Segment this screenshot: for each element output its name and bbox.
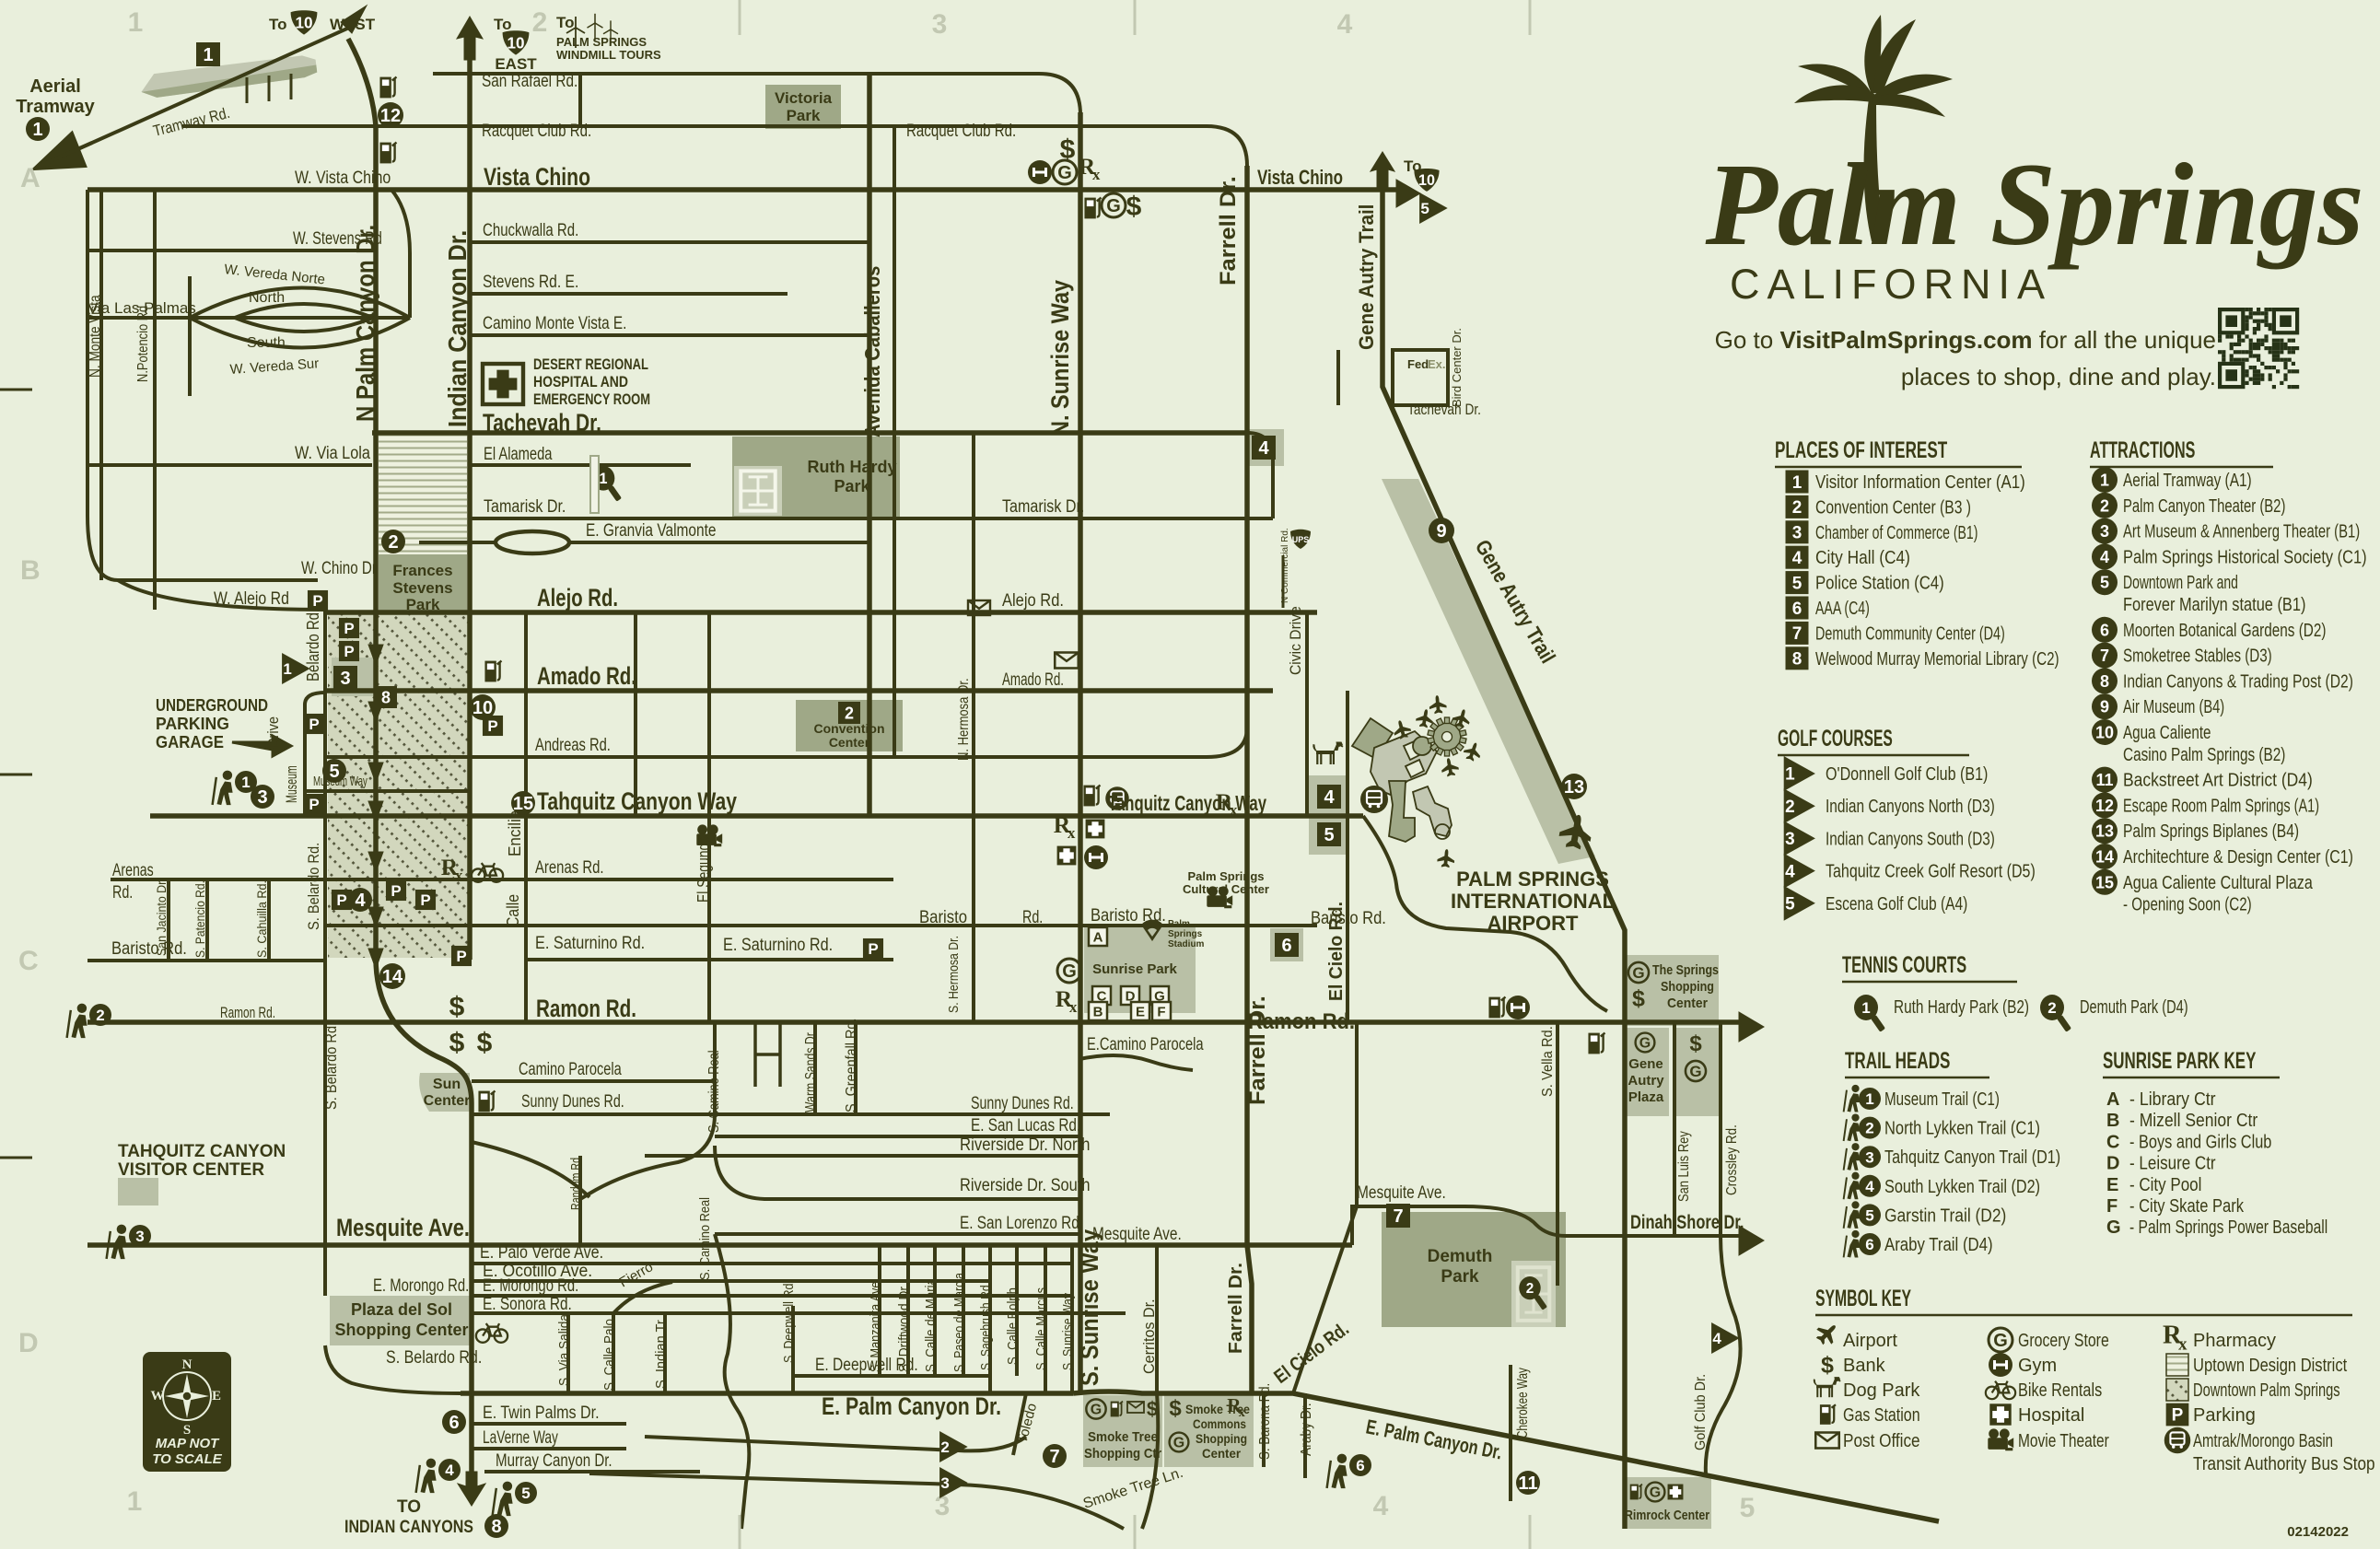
svg-text:1: 1 xyxy=(600,471,608,487)
svg-text:3: 3 xyxy=(1792,524,1802,543)
svg-text:Dog Park: Dog Park xyxy=(1843,1380,1920,1401)
svg-text:Golf Club Dr.: Golf Club Dr. xyxy=(1693,1374,1709,1450)
svg-text:E. Morongo Rd.: E. Morongo Rd. xyxy=(483,1276,578,1296)
svg-text:ATTRACTIONS: ATTRACTIONS xyxy=(2090,437,2195,463)
svg-text:E. Palo Verde Ave.: E. Palo Verde Ave. xyxy=(480,1243,603,1263)
svg-text:Vista Chino: Vista Chino xyxy=(1257,166,1343,189)
svg-text:Park: Park xyxy=(787,107,821,124)
svg-text:HOSPITAL AND: HOSPITAL AND xyxy=(533,373,628,390)
svg-text:Shopping: Shopping xyxy=(1661,979,1714,995)
svg-text:P: P xyxy=(309,796,319,813)
svg-text:Hospital: Hospital xyxy=(2018,1405,2084,1426)
svg-text:Mesquite Ave.: Mesquite Ave. xyxy=(1092,1225,1182,1244)
svg-text:G: G xyxy=(1091,1403,1102,1418)
svg-text:Tamarisk Dr.: Tamarisk Dr. xyxy=(484,497,566,517)
svg-text:14: 14 xyxy=(2095,847,2114,866)
svg-text:Rd.: Rd. xyxy=(1022,908,1043,927)
svg-text:To: To xyxy=(494,16,512,33)
svg-text:4: 4 xyxy=(1373,1491,1389,1521)
svg-text:Airport: Airport xyxy=(1843,1331,1897,1351)
svg-text:Avenida Caballeros: Avenida Caballeros xyxy=(860,266,884,437)
svg-text:Victoria: Victoria xyxy=(775,89,833,107)
svg-text:1: 1 xyxy=(128,7,144,38)
svg-text:GARAGE: GARAGE xyxy=(156,733,224,751)
svg-text:Post Office: Post Office xyxy=(1843,1431,1920,1451)
svg-text:Springs: Springs xyxy=(1168,929,1203,939)
svg-text:Escape Room Palm Springs (A1): Escape Room Palm Springs (A1) xyxy=(2123,796,2319,816)
svg-text:Baristo Rd.: Baristo Rd. xyxy=(1091,906,1166,926)
svg-text:4: 4 xyxy=(1258,438,1269,459)
svg-text:Gym: Gym xyxy=(2018,1356,2057,1376)
svg-text:Alejo Rd.: Alejo Rd. xyxy=(537,584,618,611)
svg-text:S. Calle Marcus: S. Calle Marcus xyxy=(1033,1287,1049,1370)
svg-text:- Boys and Girls Club: - Boys and Girls Club xyxy=(2129,1132,2271,1152)
svg-text:Gene Autry Trail: Gene Autry Trail xyxy=(1355,204,1378,350)
svg-text:Mesquite Ave.: Mesquite Ave. xyxy=(336,1214,470,1241)
svg-text:G: G xyxy=(2106,1217,2121,1238)
svg-text:2: 2 xyxy=(532,7,548,38)
svg-text:Rd.: Rd. xyxy=(112,883,133,903)
svg-text:4: 4 xyxy=(2100,548,2109,566)
svg-text:4: 4 xyxy=(1712,1330,1721,1347)
svg-text:5: 5 xyxy=(521,1485,530,1502)
svg-text:4: 4 xyxy=(1792,549,1802,568)
svg-text:Ruth Hardy: Ruth Hardy xyxy=(807,458,896,476)
svg-text:W. Chino Dr: W. Chino Dr xyxy=(301,559,377,578)
svg-text:Smoke Tree: Smoke Tree xyxy=(1185,1402,1250,1416)
svg-text:N.Potencio Rd: N.Potencio Rd xyxy=(135,306,151,382)
svg-text:D: D xyxy=(18,1328,39,1358)
svg-text:A: A xyxy=(1093,930,1103,946)
svg-text:$: $ xyxy=(449,992,465,1022)
svg-text:3: 3 xyxy=(340,669,350,689)
svg-text:E. Sonora Rd.: E. Sonora Rd. xyxy=(483,1295,572,1314)
svg-text:10: 10 xyxy=(472,698,493,718)
svg-text:Baristo Rd.: Baristo Rd. xyxy=(1311,909,1386,928)
svg-text:W. Via Lola: W. Via Lola xyxy=(295,444,370,463)
svg-text:N. Hermosa Dr.: N. Hermosa Dr. xyxy=(956,678,972,761)
svg-text:3: 3 xyxy=(940,1474,949,1492)
svg-text:S. Camino Real: S. Camino Real xyxy=(697,1197,713,1280)
svg-text:Alejo Rd.: Alejo Rd. xyxy=(1002,591,1064,611)
svg-text:SYMBOL KEY: SYMBOL KEY xyxy=(1815,1286,1911,1311)
svg-text:Ramon Rd.: Ramon Rd. xyxy=(536,995,636,1022)
svg-text:W. Alejo Rd: W. Alejo Rd xyxy=(214,589,289,609)
svg-text:S. Cahuilla Rd.: S. Cahuilla Rd. xyxy=(254,880,269,958)
svg-text:P: P xyxy=(309,716,319,733)
svg-text:SUNRISE PARK KEY: SUNRISE PARK KEY xyxy=(2103,1048,2257,1074)
svg-text:$: $ xyxy=(449,1028,465,1058)
svg-text:5: 5 xyxy=(1420,200,1429,217)
svg-text:10: 10 xyxy=(295,14,312,31)
svg-text:C: C xyxy=(18,946,39,976)
svg-text:$: $ xyxy=(1689,1031,1702,1056)
svg-text:5: 5 xyxy=(1865,1207,1873,1225)
svg-text:N. Sunrise Way: N. Sunrise Way xyxy=(1046,280,1074,437)
svg-text:TAHQUITZ CANYON: TAHQUITZ CANYON xyxy=(118,1142,286,1161)
svg-text:Civic Drive: Civic Drive xyxy=(1287,606,1304,675)
svg-text:Air Museum (B4): Air Museum (B4) xyxy=(2123,697,2224,717)
svg-text:S. Belardo Rd.: S. Belardo Rd. xyxy=(322,1022,340,1110)
svg-text:To: To xyxy=(269,16,287,33)
svg-text:5: 5 xyxy=(1740,1493,1756,1523)
svg-text:Stadium: Stadium xyxy=(1168,939,1205,949)
svg-text:1: 1 xyxy=(241,774,250,791)
svg-text:02142022: 02142022 xyxy=(2287,1524,2349,1540)
svg-text:Sunny Dunes Rd.: Sunny Dunes Rd. xyxy=(521,1092,624,1112)
svg-text:Tahquitz Canyon Way: Tahquitz Canyon Way xyxy=(1108,791,1266,815)
svg-text:4: 4 xyxy=(355,891,366,911)
svg-text:P: P xyxy=(391,882,401,900)
svg-text:15: 15 xyxy=(2095,873,2114,891)
svg-text:Sunny Dunes Rd.: Sunny Dunes Rd. xyxy=(971,1094,1074,1113)
svg-text:6: 6 xyxy=(1792,600,1802,619)
svg-text:Crossley Rd.: Crossley Rd. xyxy=(1724,1124,1740,1195)
svg-text:$: $ xyxy=(1126,192,1142,222)
svg-text:7: 7 xyxy=(1393,1206,1403,1227)
svg-text:S. Patencio Rd.: S. Patencio Rd. xyxy=(192,880,207,958)
svg-text:GOLF COURSES: GOLF COURSES xyxy=(1778,726,1893,751)
svg-text:INDIAN CANYONS: INDIAN CANYONS xyxy=(344,1518,473,1537)
svg-text:P: P xyxy=(336,891,346,909)
svg-text:Bird Center Dr.: Bird Center Dr. xyxy=(1450,328,1464,407)
svg-text:Visitor Information Center (A1: Visitor Information Center (A1) xyxy=(1815,472,2025,493)
svg-text:S. Belardo Rd.: S. Belardo Rd. xyxy=(386,1348,482,1368)
svg-text:E: E xyxy=(2106,1175,2118,1195)
svg-text:2: 2 xyxy=(388,532,398,553)
svg-text:Palm Springs Biplanes (B4): Palm Springs Biplanes (B4) xyxy=(2123,821,2299,842)
svg-text:Backstreet Art District (D4): Backstreet Art District (D4) xyxy=(2123,771,2313,791)
svg-text:3: 3 xyxy=(257,787,267,808)
svg-text:2: 2 xyxy=(2047,999,2056,1017)
svg-text:South Lykken Trail (D2): South Lykken Trail (D2) xyxy=(1884,1177,2040,1197)
svg-text:S. Belardo Rd.: S. Belardo Rd. xyxy=(305,843,322,930)
svg-text:Demuth: Demuth xyxy=(1428,1247,1493,1266)
svg-text:Museum: Museum xyxy=(283,765,300,803)
svg-text:Stevens: Stevens xyxy=(392,579,452,597)
svg-text:P: P xyxy=(420,891,430,909)
svg-text:A: A xyxy=(2106,1089,2119,1110)
svg-text:B: B xyxy=(20,555,41,586)
svg-text:Dinah Shore Dr.: Dinah Shore Dr. xyxy=(1630,1212,1744,1233)
svg-text:Park: Park xyxy=(1441,1267,1479,1287)
svg-text:1: 1 xyxy=(283,660,291,678)
svg-text:EMERGENCY ROOM: EMERGENCY ROOM xyxy=(533,390,650,408)
svg-text:E. Granvia Valmonte: E. Granvia Valmonte xyxy=(586,521,717,541)
svg-text:9: 9 xyxy=(2100,698,2109,716)
svg-text:13: 13 xyxy=(1564,777,1584,798)
svg-text:- Mizell Senior Ctr: - Mizell Senior Ctr xyxy=(2129,1111,2257,1131)
svg-text:Cerritos Dr.: Cerritos Dr. xyxy=(1140,1299,1158,1374)
svg-text:Tachevah Dr.: Tachevah Dr. xyxy=(1407,401,1481,418)
svg-text:Mesquite Ave.: Mesquite Ave. xyxy=(1357,1183,1446,1203)
svg-text:2: 2 xyxy=(1526,1281,1534,1297)
svg-text:Palm Springs Historical Societ: Palm Springs Historical Society (C1) xyxy=(2123,547,2367,567)
svg-text:Via Las Palmas: Via Las Palmas xyxy=(87,299,196,317)
svg-text:2: 2 xyxy=(2100,496,2109,515)
svg-text:Calle: Calle xyxy=(504,894,522,927)
svg-text:VISITOR CENTER: VISITOR CENTER xyxy=(118,1160,264,1180)
svg-text:WINDMILL TOURS: WINDMILL TOURS xyxy=(556,48,661,62)
svg-text:3: 3 xyxy=(2100,522,2109,541)
svg-text:Downtown Palm Springs: Downtown Palm Springs xyxy=(2193,1380,2340,1401)
svg-text:PALM SPRINGS: PALM SPRINGS xyxy=(556,35,647,49)
svg-text:S. Calle Rolph: S. Calle Rolph xyxy=(1005,1287,1021,1365)
svg-text:1: 1 xyxy=(1785,765,1795,785)
svg-text:G: G xyxy=(1650,1485,1661,1501)
svg-text:E: E xyxy=(212,1389,221,1403)
svg-text:Bike Rentals: Bike Rentals xyxy=(2018,1380,2102,1401)
svg-text:MAP NOT: MAP NOT xyxy=(156,1436,220,1451)
svg-text:Movie Theater: Movie Theater xyxy=(2018,1431,2109,1451)
svg-text:Farrell Dr.: Farrell Dr. xyxy=(1226,1263,1246,1354)
svg-text:W. Vista Chino: W. Vista Chino xyxy=(295,169,391,188)
svg-text:E. Saturnino Rd.: E. Saturnino Rd. xyxy=(723,936,833,955)
svg-text:INTERNATIONAL: INTERNATIONAL xyxy=(1451,890,1615,913)
svg-text:Police Station (C4): Police Station (C4) xyxy=(1815,574,1944,594)
svg-text:Palm Canyon Theater (B2): Palm Canyon Theater (B2) xyxy=(2123,496,2285,517)
svg-text:AAA (C4): AAA (C4) xyxy=(1815,599,1870,619)
svg-text:- Opening Soon (C2): - Opening Soon (C2) xyxy=(2123,895,2252,915)
svg-text:B: B xyxy=(2106,1111,2119,1131)
svg-text:2: 2 xyxy=(1785,798,1795,817)
svg-text:Grocery Store: Grocery Store xyxy=(2018,1331,2109,1351)
svg-text:Frances: Frances xyxy=(392,562,452,579)
svg-text:Architechture & Design Center: Architechture & Design Center (C1) xyxy=(2123,847,2353,868)
svg-text:Pharmacy: Pharmacy xyxy=(2193,1331,2276,1351)
svg-text:P: P xyxy=(344,620,354,637)
svg-text:TO SCALE: TO SCALE xyxy=(152,1451,223,1467)
svg-text:1: 1 xyxy=(2100,471,2109,489)
svg-text:- City Skate Park: - City Skate Park xyxy=(2129,1196,2245,1217)
svg-text:City Hall (C4): City Hall (C4) xyxy=(1815,548,1910,568)
svg-text:Riverside Dr. North: Riverside Dr. North xyxy=(960,1136,1091,1155)
svg-text:S. Greenfall Rd.: S. Greenfall Rd. xyxy=(844,1019,859,1112)
svg-text:Palm: Palm xyxy=(1168,919,1190,929)
svg-text:Center: Center xyxy=(1667,996,1708,1011)
svg-text:CALIFORNIA: CALIFORNIA xyxy=(1730,261,2052,308)
svg-text:6: 6 xyxy=(1281,936,1291,956)
svg-text:x: x xyxy=(1069,998,1078,1016)
svg-text:Art Museum & Annenberg Theater: Art Museum & Annenberg Theater (B1) xyxy=(2123,522,2360,542)
svg-text:S. Camino Real: S. Camino Real xyxy=(706,1050,722,1133)
svg-text:Riverside Dr. South: Riverside Dr. South xyxy=(960,1176,1091,1195)
svg-text:Drive: Drive xyxy=(264,716,282,748)
svg-text:12: 12 xyxy=(2095,797,2114,815)
svg-text:Indian Canyons South (D3): Indian Canyons South (D3) xyxy=(1826,829,1995,849)
svg-text:P: P xyxy=(2172,1406,2184,1426)
svg-text:G: G xyxy=(1632,964,1644,982)
svg-text:Amado Rd.: Amado Rd. xyxy=(537,662,636,690)
svg-text:Shopping Center: Shopping Center xyxy=(335,1321,469,1339)
svg-text:S. Driftwood Dr.: S. Driftwood Dr. xyxy=(896,1284,912,1372)
svg-text:10: 10 xyxy=(2095,723,2114,741)
svg-text:Demuth Park (D4): Demuth Park (D4) xyxy=(2080,997,2188,1018)
svg-text:11: 11 xyxy=(2095,771,2113,789)
svg-text:Museum Trail (C1): Museum Trail (C1) xyxy=(1884,1089,2000,1110)
svg-text:10: 10 xyxy=(1418,172,1435,189)
svg-text:1: 1 xyxy=(127,1486,143,1517)
svg-text:Tamarisk Dr.: Tamarisk Dr. xyxy=(1002,497,1084,517)
svg-text:Downtown Park and: Downtown Park and xyxy=(2123,573,2238,593)
svg-text:El Segundo: El Segundo xyxy=(694,836,713,903)
svg-text:TRAIL HEADS: TRAIL HEADS xyxy=(1845,1048,1950,1074)
svg-text:Amtrak/Morongo Basin: Amtrak/Morongo Basin xyxy=(2193,1431,2333,1451)
svg-text:WEST: WEST xyxy=(330,16,376,33)
svg-text:4: 4 xyxy=(1785,862,1795,881)
svg-text:S. Sunrise Way: S. Sunrise Way xyxy=(1076,1229,1103,1386)
svg-text:7: 7 xyxy=(1792,624,1802,644)
svg-text:S. Sunrise Way: S. Sunrise Way xyxy=(1060,1293,1076,1370)
svg-text:Commons: Commons xyxy=(1193,1416,1246,1431)
svg-text:E: E xyxy=(1136,1005,1145,1020)
svg-text:S. Sagebrush Rd.: S. Sagebrush Rd. xyxy=(978,1282,994,1370)
svg-text:P: P xyxy=(344,643,354,660)
svg-text:4: 4 xyxy=(1324,787,1335,808)
svg-text:Arenas: Arenas xyxy=(112,861,154,880)
svg-text:S. Paseo de Marcia: S. Paseo de Marcia xyxy=(951,1272,967,1372)
svg-text:S. Calle Palo: S. Calle Palo xyxy=(601,1319,617,1391)
svg-text:N: N xyxy=(182,1357,192,1372)
svg-text:D: D xyxy=(2106,1154,2119,1174)
svg-text:Andreas Rd.: Andreas Rd. xyxy=(535,736,611,755)
svg-text:G: G xyxy=(1106,196,1121,216)
svg-text:E.Camino Parocela: E.Camino Parocela xyxy=(1087,1035,1204,1054)
svg-text:E. San Lucas Rd.: E. San Lucas Rd. xyxy=(971,1116,1080,1136)
svg-text:F: F xyxy=(1157,1005,1165,1020)
svg-text:7: 7 xyxy=(2100,646,2109,665)
svg-text:1: 1 xyxy=(1792,473,1802,493)
svg-text:Sun: Sun xyxy=(433,1077,461,1092)
svg-text:North: North xyxy=(249,290,285,306)
svg-text:Center: Center xyxy=(829,735,870,750)
svg-text:Racquet Club Rd.: Racquet Club Rd. xyxy=(482,122,591,141)
svg-text:3: 3 xyxy=(1785,830,1795,849)
svg-text:Chamber of Commerce (B1): Chamber of Commerce (B1) xyxy=(1815,523,1977,543)
svg-text:Moorten Botanical Gardens (D2): Moorten Botanical Gardens (D2) xyxy=(2123,621,2327,641)
svg-text:Stevens Rd. E.: Stevens Rd. E. xyxy=(483,273,578,292)
svg-text:- Library Ctr: - Library Ctr xyxy=(2129,1089,2216,1110)
svg-text:S. Calle de Maria: S. Calle de Maria xyxy=(923,1277,939,1372)
svg-text:2: 2 xyxy=(1792,498,1802,518)
svg-text:G: G xyxy=(1993,1331,2008,1351)
svg-text:PARKING: PARKING xyxy=(156,715,229,733)
svg-text:2: 2 xyxy=(96,1007,104,1024)
svg-text:4: 4 xyxy=(1337,9,1353,40)
svg-text:P: P xyxy=(487,717,497,735)
svg-text:Convention Center (B3 ): Convention Center (B3 ) xyxy=(1815,497,1971,518)
svg-text:Indian Canyons & Trading Post: Indian Canyons & Trading Post (D2) xyxy=(2123,671,2353,692)
svg-text:Center: Center xyxy=(424,1093,471,1109)
svg-text:- Palm Springs Power Baseball: - Palm Springs Power Baseball xyxy=(2129,1217,2327,1238)
svg-text:8: 8 xyxy=(381,688,391,706)
svg-text:1: 1 xyxy=(1865,1090,1873,1108)
svg-text:Transit Authority Bus Stop: Transit Authority Bus Stop xyxy=(2193,1454,2375,1474)
svg-text:9: 9 xyxy=(1436,521,1446,542)
svg-text:- City Pool: - City Pool xyxy=(2129,1175,2201,1195)
svg-text:$: $ xyxy=(1632,986,1645,1012)
svg-text:5: 5 xyxy=(1785,894,1795,914)
svg-text:Plaza del Sol: Plaza del Sol xyxy=(351,1300,452,1319)
svg-text:Tahquitz Canyon Way: Tahquitz Canyon Way xyxy=(537,787,737,815)
svg-text:Shopping Ctr: Shopping Ctr xyxy=(1084,1446,1161,1462)
svg-text:S. Hermosa Dr.: S. Hermosa Dr. xyxy=(946,936,962,1013)
svg-text:Araby Trail (D4): Araby Trail (D4) xyxy=(1884,1235,1993,1255)
svg-text:x: x xyxy=(455,867,463,884)
svg-text:S. Deepwell Rd.: S. Deepwell Rd. xyxy=(781,1280,797,1363)
svg-text:1: 1 xyxy=(1861,999,1870,1017)
svg-text:Racquet Club Rd.: Racquet Club Rd. xyxy=(906,122,1016,141)
svg-text:Garstin Trail (D2): Garstin Trail (D2) xyxy=(1884,1205,2006,1226)
svg-text:N Commercial Rd.: N Commercial Rd. xyxy=(1280,528,1290,603)
svg-text:P: P xyxy=(456,948,466,965)
svg-text:S. Vella Rd.: S. Vella Rd. xyxy=(1540,1026,1556,1097)
svg-text:10: 10 xyxy=(507,34,524,52)
svg-text:San Rafael Rd.: San Rafael Rd. xyxy=(482,72,577,91)
svg-text:2: 2 xyxy=(940,1438,949,1456)
svg-text:E. Twin Palms Dr.: E. Twin Palms Dr. xyxy=(483,1403,600,1423)
svg-text:Cultural Center: Cultural Center xyxy=(1183,882,1269,896)
svg-text:1: 1 xyxy=(203,45,213,65)
svg-text:E. Palm Canyon Dr.: E. Palm Canyon Dr. xyxy=(822,1392,1001,1420)
svg-text:14: 14 xyxy=(382,967,403,987)
svg-text:places to shop, dine and play.: places to shop, dine and play. xyxy=(1901,363,2216,390)
svg-text:5: 5 xyxy=(1324,825,1334,845)
svg-text:E. Morongo Rd.: E. Morongo Rd. xyxy=(373,1276,469,1296)
svg-text:Autry: Autry xyxy=(1627,1073,1664,1089)
svg-text:x: x xyxy=(1092,166,1101,183)
svg-text:Uptown Design District: Uptown Design District xyxy=(2193,1356,2348,1376)
svg-text:North Lykken Trail (C1): North Lykken Trail (C1) xyxy=(1884,1119,2040,1139)
svg-text:El Alameda: El Alameda xyxy=(484,445,553,464)
svg-text:Farrell Dr.: Farrell Dr. xyxy=(1216,176,1241,285)
svg-text:$: $ xyxy=(1821,1353,1834,1379)
svg-text:Smoketree Stables (D3): Smoketree Stables (D3) xyxy=(2123,646,2272,667)
svg-text:5: 5 xyxy=(2100,574,2109,592)
svg-text:G: G xyxy=(1062,961,1077,982)
svg-text:O'Donnell Golf Club (B1): O'Donnell Golf Club (B1) xyxy=(1826,764,1988,785)
svg-text:8: 8 xyxy=(1792,650,1802,670)
svg-text:Arenas Rd.: Arenas Rd. xyxy=(535,858,604,878)
svg-text:Baristo Rd.: Baristo Rd. xyxy=(111,939,187,959)
svg-text:Tahquitz Canyon Trail (D1): Tahquitz Canyon Trail (D1) xyxy=(1884,1147,2060,1168)
svg-text:4: 4 xyxy=(1865,1178,1874,1195)
svg-text:Casino Palm Springs (B2): Casino Palm Springs (B2) xyxy=(2123,745,2285,765)
svg-text:Palm Springs: Palm Springs xyxy=(1187,869,1264,883)
svg-text:DESERT REGIONAL: DESERT REGIONAL xyxy=(533,355,648,373)
svg-text:Aerial: Aerial xyxy=(29,76,81,97)
svg-text:S. Barona Rd.: S. Barona Rd. xyxy=(1257,1383,1273,1460)
svg-text:Sunrise Park: Sunrise Park xyxy=(1092,961,1177,977)
svg-text:Camino Monte Vista E.: Camino Monte Vista E. xyxy=(483,314,626,333)
svg-text:B: B xyxy=(1093,1005,1103,1020)
svg-text:3: 3 xyxy=(1865,1148,1873,1166)
svg-text:Escena Golf Club (A4): Escena Golf Club (A4) xyxy=(1826,894,1967,914)
svg-text:Smoke Tree: Smoke Tree xyxy=(1088,1429,1158,1445)
svg-text:6: 6 xyxy=(449,1413,459,1433)
svg-text:Amado Rd.: Amado Rd. xyxy=(1002,670,1064,690)
svg-text:13: 13 xyxy=(2095,822,2114,841)
svg-text:Baristo: Baristo xyxy=(919,908,967,927)
svg-text:Bank: Bank xyxy=(1843,1356,1886,1376)
svg-text:Vista Chino: Vista Chino xyxy=(484,163,590,191)
svg-text:7: 7 xyxy=(1049,1447,1059,1467)
svg-text:6: 6 xyxy=(1356,1457,1364,1474)
svg-text:S. Via Salida: S. Via Salida xyxy=(556,1313,572,1386)
svg-text:Gas Station: Gas Station xyxy=(1843,1405,1920,1426)
svg-text:5: 5 xyxy=(1792,574,1802,593)
svg-text:Ruth Hardy Park (B2): Ruth Hardy Park (B2) xyxy=(1894,997,2029,1018)
